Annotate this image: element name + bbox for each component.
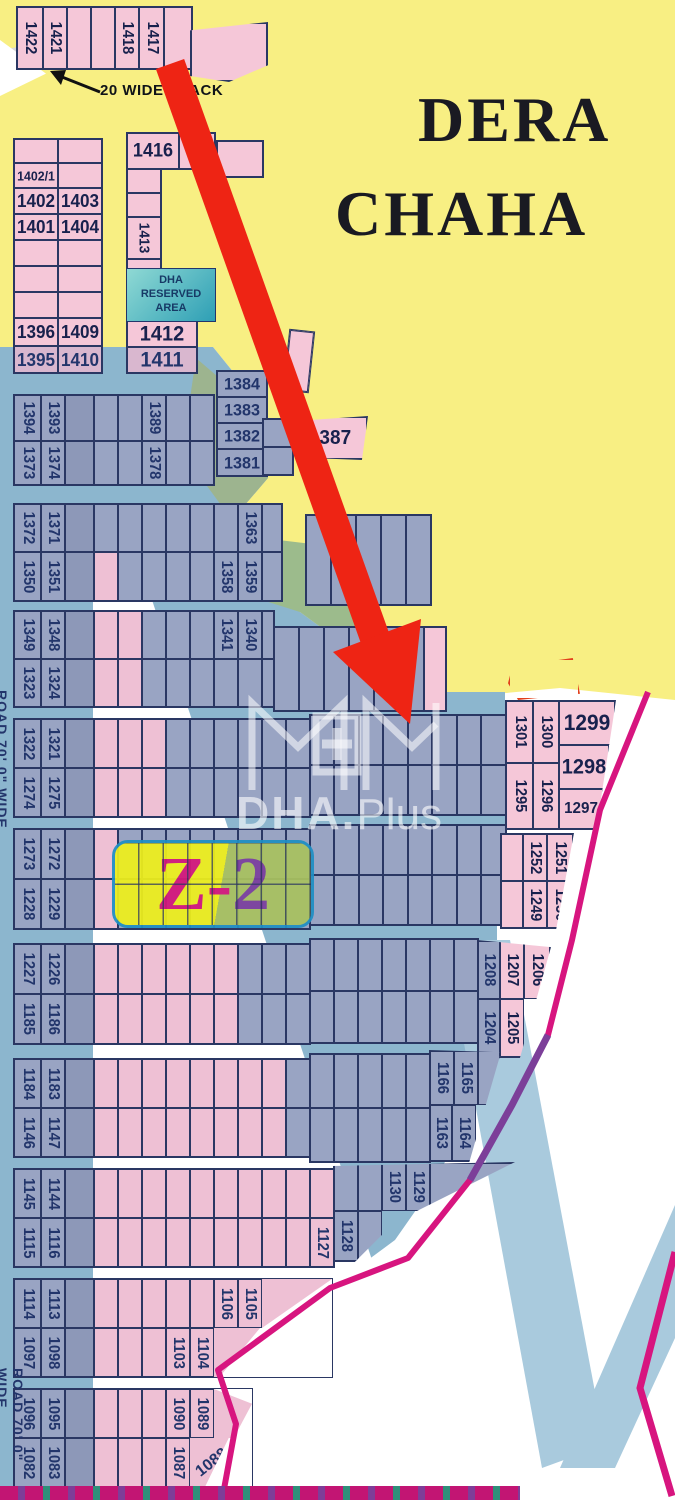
plot-number: 1226 [45,953,61,986]
plot-cell [481,765,506,815]
plot-block-r4r [309,714,507,816]
plot-cell [359,715,383,765]
plot-row: 1082108310871088 [14,1438,252,1487]
plot-number: 1164 [456,1117,472,1149]
plot-number: 1097 [20,1336,36,1369]
plot-cell [406,1054,430,1108]
plot-cell [238,659,262,707]
plot-number: 1252 [527,841,543,874]
plot-1411: 1411 [127,347,197,373]
area-title-line1: DERA [418,88,611,152]
plot-number: 1382 [224,428,260,445]
plot-cell [94,1059,118,1108]
plot-1422: 1422 [17,7,43,69]
plot-1387: 1387 [293,417,367,459]
plot-1229: 1229 [41,879,65,929]
plot-cell [142,944,166,994]
plot-cell [94,768,118,817]
plot-1381: 1381 [217,449,267,476]
plot-cell [359,765,383,815]
plot-1226: 1226 [41,944,65,994]
plot-number: 1227 [20,953,36,986]
plot-cell [65,611,94,659]
plot-cell [286,994,310,1044]
plot-cell [190,659,214,707]
plot-number: 1416 [133,142,173,161]
plot-1413: 1413 [127,217,161,259]
plot-cell [65,1389,94,1438]
plot-cell [214,504,238,552]
plot-cell [58,266,102,292]
plot-cell [94,1279,118,1328]
plot-cell [432,825,457,875]
plot-1321: 1321 [41,719,65,768]
plot-map-canvas: DHA RESERVED AREA Z- 2 DERA CHAHA 20 WID… [0,0,675,1500]
plot-cell [166,441,190,485]
plot-block-r6: 1227122611851186 [13,943,311,1045]
plot-cell [65,1108,94,1157]
plot-cell [286,1169,310,1218]
plot-row: 137313741378 [14,441,214,485]
plot-1205: 1205 [500,999,524,1057]
plot-cell [381,515,406,605]
plot-cell [382,939,406,991]
plot-row [127,193,161,217]
plot-cell [286,1108,310,1157]
plot-number: 1409 [61,323,99,341]
plot-number: 1418 [119,22,135,55]
plot-cell [164,7,192,69]
plot-cell [94,552,118,601]
plot-number: 1395 [17,351,55,369]
plot-1324: 1324 [41,659,65,707]
plot-1208: 1208 [478,941,500,999]
plot-row: 13961409 [14,318,102,346]
plot-cell [166,944,190,994]
plot-1323: 1323 [14,659,41,707]
plot-cell [190,1108,214,1157]
plot-block-r4: 1322132112741275 [13,718,311,818]
plot-block-r2: 1372137113631350135113581359 [13,503,283,602]
plot-number: 1206 [529,954,545,987]
plot-number: 1421 [47,22,63,55]
plot-cell [190,441,214,485]
plot-cell [118,1438,142,1487]
plot-number: 1128 [338,1220,354,1252]
plot-cell [118,504,142,552]
plot-row: 12741275 [14,768,310,817]
plot-block-left-block: 1402/114021403140114041396140913951410 [13,138,103,374]
plot-1410: 1410 [58,346,102,373]
plot-cell [118,441,142,485]
plot-cell [142,1059,166,1108]
plot-1128: 1128 [334,1211,358,1261]
plot-1341: 1341 [214,611,238,659]
plot-cell [94,441,118,485]
plot-cell [166,611,190,659]
plot-cell [399,627,424,711]
plot-number: 1185 [20,1003,36,1035]
plot-number: 1295 [512,780,528,813]
plot-cell [94,719,118,768]
plot-1373: 1373 [14,441,41,485]
plot-number: 1417 [144,22,160,55]
plot-1374: 1374 [41,441,65,485]
plot-cell [358,991,382,1043]
plot-row: 12491250 [501,881,573,928]
plot-cell [142,1218,166,1267]
plot-cell [406,515,431,605]
plot-cell [238,1059,262,1108]
plot-cell [14,240,58,266]
plot-row: 11461147 [14,1108,310,1157]
plot-cell [454,991,478,1043]
plot-number: 1374 [45,447,61,480]
plot-number: 1251 [552,841,568,874]
plot-cell [238,1108,262,1157]
plot-1416: 1416 [127,133,179,169]
plot-row: 12271226 [14,944,310,994]
plot-row [284,330,314,392]
plot-cell [166,659,190,707]
plot-cell [65,1438,94,1487]
plot-cell [190,768,214,817]
plot-1098: 1098 [41,1328,65,1377]
plot-row: 11301129 [334,1163,514,1211]
plot-1412: 1412 [127,321,197,347]
plot-cell [299,627,324,711]
plot-cell [358,1108,382,1162]
plot-row: 13011300 [506,701,559,763]
plot-1297: 1297 [559,789,603,829]
plot-row: 11841183 [14,1059,310,1108]
plot-cell [118,719,142,768]
plot-block-r9: 11141113110611051097109811031104 [13,1278,333,1378]
plot-row: 11851186 [14,994,310,1044]
plot-cell [310,765,334,815]
plot-number: 1359 [242,560,258,593]
plot-number: 1115 [20,1227,36,1258]
plot-cell [432,875,457,925]
plot-1403: 1403 [58,188,102,214]
plot-number: 1113 [45,1288,61,1319]
plot-cell [383,875,408,925]
area-title-line2: CHAHA [335,182,588,246]
plot-number: 1147 [45,1117,61,1149]
plot-1383: 1383 [217,397,267,423]
plot-row [14,266,102,292]
plot-1273: 1273 [14,829,41,879]
plot-1371: 1371 [41,504,65,552]
plot-row: 13231324 [14,659,274,707]
plot-row: 1383 [217,397,267,423]
plot-block-r10: 10961095109010891082108310871088 [13,1388,253,1488]
plot-number: 1324 [45,667,61,700]
plot-cell [284,330,314,392]
plot-row: 14011404 [14,214,102,240]
plot-block-pp2 [216,140,264,178]
plot-1089: 1089 [190,1389,214,1438]
plot-1207: 1207 [500,941,524,999]
plot-cell [358,1054,382,1108]
plot-cell [214,659,238,707]
reserved-line2: RESERVED [141,288,201,302]
plot-cell [263,447,293,475]
plot-cell [67,7,91,69]
plot-cell [359,875,383,925]
plot-1296: 1296 [533,763,559,829]
plot-1358: 1358 [214,552,238,601]
plot-number: 1184 [20,1068,36,1100]
reserved-line3: AREA [155,302,186,316]
plot-cell [91,7,115,69]
plot-cell [94,1389,118,1438]
plot-cell [190,552,214,601]
plot-1396: 1396 [14,318,58,346]
plot-cell [94,659,118,707]
plot-1228: 1228 [14,879,41,929]
plot-row: 1297 [559,789,615,829]
plot-cell [383,715,408,765]
plot-cell [127,169,161,193]
plot-row: 1096109510901089 [14,1389,252,1438]
plot-number: 1301 [512,716,528,749]
plot-1418: 1418 [115,7,139,69]
plot-number: 1205 [504,1012,520,1045]
road-label-lower: ROAD 70' 0" WIDE [0,1368,26,1500]
plot-number: 1272 [45,838,61,871]
plot-cell [334,1108,358,1162]
plot-cell [190,611,214,659]
plot-cell [457,765,481,815]
plot-number: 1403 [61,192,99,210]
plot-number: 1323 [20,667,36,700]
plot-cell [166,1059,190,1108]
plot-cell [118,1169,142,1218]
plot-cell [262,1059,286,1108]
plot-cell [214,944,238,994]
plot-row: 1412 [127,321,197,347]
plot-1129: 1129 [406,1163,430,1211]
plot-number: 1083 [45,1446,61,1479]
plot-1083: 1083 [41,1438,65,1487]
plot-1165: 1165 [454,1051,478,1105]
plot-row [14,139,102,163]
plot-number: 1087 [170,1446,186,1479]
plot-number: 1298 [562,757,606,778]
plot-1252: 1252 [523,834,547,881]
plot-cell [118,1389,142,1438]
plot-block-tri-1130: 113011291128 [333,1162,515,1262]
plot-number: 1340 [242,619,258,652]
plot-cell [142,552,166,601]
plot-1382: 1382 [217,423,267,449]
plot-number: 1249 [527,888,543,921]
plot-row: 1114111311061105 [14,1279,332,1328]
plot-cell [214,1108,238,1157]
plot-cell [457,825,481,875]
plot-1404: 1404 [58,214,102,240]
plot-cell [190,994,214,1044]
plot-row: 1097109811031104 [14,1328,332,1377]
plot-cell [432,765,457,815]
plot-cell [286,944,310,994]
plot-number: 1381 [224,454,260,471]
plot-number: 1088 [193,1445,231,1480]
plot-cell [262,504,282,552]
plot-1401: 1401 [14,214,58,240]
plot-1090: 1090 [166,1389,190,1438]
plot-cell [142,1389,166,1438]
plot-cell [94,1438,118,1487]
plot-1206: 1206 [524,941,550,999]
plot-number: 1383 [224,402,260,419]
plot-number: 1378 [146,447,162,480]
plot-1295: 1295 [506,763,533,829]
plot-block-plot-1387: 1387 [292,416,368,460]
plot-number: 1146 [20,1117,36,1149]
plot-cell [382,991,406,1043]
plot-number: 1095 [45,1397,61,1430]
plot-cell [383,765,408,815]
plot-cell [334,715,359,765]
plot-cell [383,825,408,875]
plot-number: 1144 [45,1178,61,1210]
plot-block-pink-1251: 1252125112491250 [500,833,574,929]
plot-1359: 1359 [238,552,262,601]
plot-1249: 1249 [523,881,547,928]
plot-cell [334,765,359,815]
plot-number: 1404 [61,218,99,236]
plot-1250: 1250 [547,881,573,928]
plot-cell [310,1108,334,1162]
plot-number: 1422 [22,22,38,55]
plot-1104: 1104 [190,1328,214,1377]
plot-number: 1103 [170,1337,186,1369]
plot-block-pink-1300: 1301130012951296 [505,700,560,830]
plot-1389: 1389 [142,395,166,441]
plot-row [127,169,161,193]
plot-block-r1: 139413931389137313741378 [13,394,215,486]
plot-cell [166,768,190,817]
plot-cell [430,939,454,991]
plot-1402-1: 1402/1 [14,163,58,188]
plot-number: 1116 [45,1227,61,1258]
plot-1298: 1298 [559,745,609,789]
plot-block-plot-1412: 14121411 [126,320,198,374]
plot-1384: 1384 [217,371,267,397]
plot-1115: 1115 [14,1218,41,1267]
plot-1145: 1145 [14,1169,41,1218]
plot-1395: 1395 [14,346,58,373]
plot-cell [118,659,142,707]
plot-block-strip-1413: 1413 [126,168,162,270]
plot-row [310,1054,430,1108]
plot-1363: 1363 [238,504,262,552]
plot-1127: 1127 [310,1218,334,1267]
plot-row: 1384 [217,371,267,397]
plot-cell [457,875,481,925]
plot-cell [142,504,166,552]
plot-row: 1128 [334,1211,514,1261]
plot-row [310,875,506,925]
plot-cell [65,768,94,817]
plot-cell [65,441,94,485]
plot-number: 1300 [538,716,554,749]
plot-row: 139413931389 [14,395,214,441]
plot-row [310,765,506,815]
plot-row [14,292,102,318]
plot-number: 1129 [410,1171,426,1203]
plot-cell [65,659,94,707]
plot-number: 1412 [140,324,184,345]
plot-number: 1299 [564,712,611,734]
plot-cell [501,834,523,881]
plot-cell [190,944,214,994]
plot-cell [190,719,214,768]
plot-cell [382,1211,514,1261]
plot-number: 1413 [137,223,152,254]
plot-cell [310,1169,334,1218]
plot-row [310,939,478,991]
plot-number: 1396 [17,323,55,341]
plot-row: 1350135113581359 [14,552,282,601]
plot-number: 1322 [20,727,36,760]
plot-block-r6r [309,938,479,1044]
plot-cell [238,768,262,817]
plot-cell [356,515,381,605]
plot-cell [457,715,481,765]
plot-1421: 1421 [43,7,67,69]
railway-dashed-boundary [0,1486,520,1500]
plot-cell [166,504,190,552]
reserved-line1: DHA [159,274,183,288]
plot-1147: 1147 [41,1108,65,1157]
plot-number: 1229 [45,888,61,921]
plot-cell [142,994,166,1044]
plot-1164: 1164 [452,1105,476,1161]
plot-cell [118,1218,142,1267]
plot-row [310,825,506,875]
plot-number: 1350 [20,560,36,593]
plot-block-r3: 134913481341134013231324 [13,610,275,708]
plot-cell [65,395,94,441]
plot-number: 1127 [314,1227,330,1259]
plot-row: 11451144 [14,1169,334,1218]
plot-cell [334,939,358,991]
plot-cell [118,1328,142,1377]
plot-number: 1372 [20,512,36,545]
plot-number: 1411 [140,350,183,371]
plot-cell [190,1169,214,1218]
plot-cell [65,944,94,994]
plot-1402: 1402 [14,188,58,214]
plot-cell [263,419,293,447]
plot-cell [65,994,94,1044]
plot-row [310,715,506,765]
plot-row [217,141,263,177]
plot-1130: 1130 [382,1163,406,1211]
plot-row: 1416 [127,133,215,169]
plot-number: 1389 [146,402,162,435]
plot-1163: 1163 [430,1105,452,1161]
plot-cell [262,719,286,768]
plot-cell [406,939,430,991]
plot-cell [142,1108,166,1157]
road-label-upper: ROAD 70' 0" WIDE [0,690,10,829]
plot-number: 1402/1 [17,169,55,182]
zone-z2-badge: Z- 2 [112,840,314,928]
